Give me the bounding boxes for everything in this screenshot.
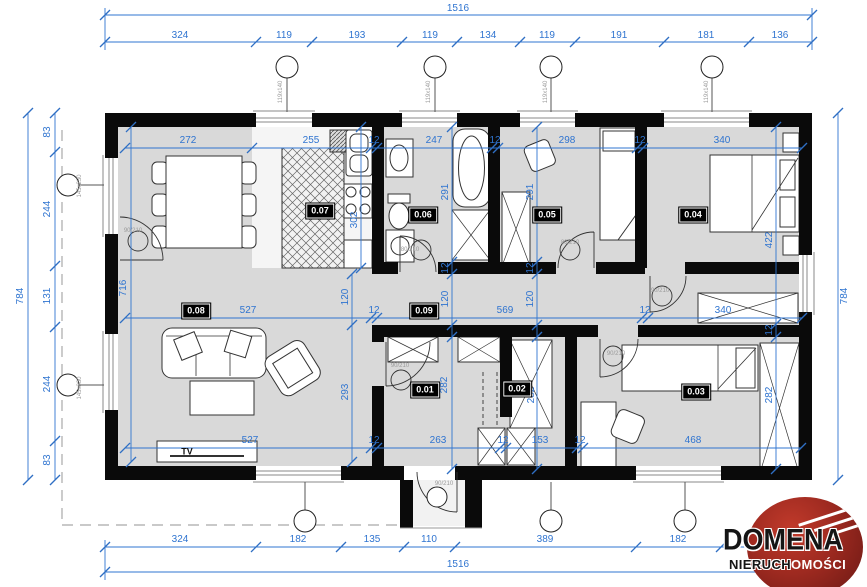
kitchen-island bbox=[282, 148, 344, 268]
coffee-table bbox=[190, 381, 254, 415]
dimension-label: 12 bbox=[489, 136, 500, 146]
toilet bbox=[389, 203, 409, 229]
size-annotation: 80/210 bbox=[561, 240, 579, 246]
closet-02-furniture bbox=[478, 340, 552, 465]
dimension-label: 12 bbox=[634, 136, 645, 146]
wardrobe bbox=[388, 337, 438, 362]
wardrobe bbox=[502, 192, 530, 266]
dimension-label: 181 bbox=[698, 31, 715, 41]
dimension-label: 119 bbox=[276, 31, 292, 41]
chair bbox=[152, 162, 168, 184]
property-boundary-dashed bbox=[62, 130, 400, 525]
nightstand bbox=[783, 133, 799, 152]
bedroom-05-furniture bbox=[502, 128, 638, 266]
interior-wall bbox=[372, 262, 398, 274]
size-annotation: 90/210 bbox=[435, 481, 453, 487]
bathtub bbox=[453, 129, 490, 207]
dimension-label: 120 bbox=[441, 291, 451, 308]
porch-wall bbox=[400, 480, 413, 528]
dimension-label: 282 bbox=[440, 377, 450, 394]
size-annotation: 119x140 bbox=[543, 81, 549, 104]
size-annotation: 145x230 bbox=[77, 376, 83, 399]
marker-circle bbox=[540, 56, 562, 112]
dimension-label: 182 bbox=[670, 535, 687, 545]
dimension-label: 263 bbox=[430, 436, 447, 446]
washbasin bbox=[386, 139, 413, 177]
logo-subtitle: NIERUCHOMOŚCI bbox=[729, 557, 846, 572]
marker-circle bbox=[57, 374, 104, 396]
size-annotation: 119x140 bbox=[704, 81, 710, 104]
size-annotation: 90/210 bbox=[124, 228, 142, 234]
floor-plan-canvas: 145x230145x230119x140119x140119x140119x1… bbox=[0, 0, 867, 587]
dimension-label: 527 bbox=[240, 306, 257, 316]
sofa-pillow bbox=[224, 330, 251, 357]
dimension-label: 12 bbox=[497, 436, 508, 446]
dimension-label: 119 bbox=[539, 31, 555, 41]
desk bbox=[581, 402, 616, 468]
dimension-label: 182 bbox=[290, 535, 307, 545]
dimension-label: 1516 bbox=[447, 560, 469, 570]
interior-wall bbox=[635, 127, 647, 268]
dining-table bbox=[166, 156, 242, 248]
dimension-label: 468 bbox=[685, 436, 702, 446]
wardrobe bbox=[698, 293, 798, 323]
interior-wall bbox=[500, 337, 512, 417]
single-bed bbox=[622, 345, 758, 391]
exterior-wall-left bbox=[105, 113, 118, 480]
interior-wall bbox=[685, 262, 812, 274]
armchair bbox=[262, 337, 324, 399]
exterior-wall-right bbox=[799, 113, 812, 480]
marker-circle bbox=[674, 482, 696, 532]
marker-circle bbox=[294, 482, 316, 532]
single-bed bbox=[600, 128, 638, 240]
dimension-label: 12 bbox=[441, 262, 451, 273]
wardrobe bbox=[760, 343, 799, 473]
window bbox=[633, 466, 724, 482]
dimension-lines bbox=[28, 8, 838, 580]
shower bbox=[452, 210, 490, 260]
size-annotation: 119x140 bbox=[426, 81, 432, 104]
size-annotation: 90/210 bbox=[607, 351, 625, 357]
dimension-label: 135 bbox=[364, 535, 381, 545]
marker-circle bbox=[540, 482, 562, 532]
windows bbox=[103, 111, 814, 482]
size-annotation: 90/210 bbox=[391, 363, 409, 369]
porch-floor bbox=[413, 480, 465, 526]
dimension-label: 282 bbox=[765, 387, 775, 404]
interior-wall bbox=[438, 262, 556, 274]
window bbox=[253, 466, 344, 482]
dimension-label: 244 bbox=[43, 201, 53, 218]
floors bbox=[118, 127, 799, 526]
door-swing bbox=[558, 232, 594, 268]
sofa bbox=[162, 328, 266, 378]
dimension-label: 12 bbox=[639, 306, 650, 316]
sliding-opening bbox=[483, 372, 497, 428]
room-number: 0.06 bbox=[409, 208, 437, 223]
dimension-label: 302 bbox=[350, 212, 360, 229]
size-annotation: 145x230 bbox=[77, 174, 83, 197]
size-annotation: 119x140 bbox=[278, 81, 284, 104]
marker-circle bbox=[424, 56, 446, 112]
kitchen-floor bbox=[252, 127, 372, 268]
room-number: 0.02 bbox=[503, 382, 531, 397]
window bbox=[399, 111, 460, 127]
wardrobe bbox=[507, 428, 535, 465]
marker-circle bbox=[701, 56, 723, 112]
chair bbox=[240, 194, 256, 216]
interior-wall bbox=[638, 325, 812, 337]
toilet-tank bbox=[388, 194, 410, 203]
sofa-pillow bbox=[174, 332, 203, 361]
fridge bbox=[344, 240, 372, 268]
chair bbox=[240, 162, 256, 184]
room-number: 0.01 bbox=[411, 383, 439, 398]
dimension-label: 298 bbox=[559, 136, 576, 146]
pillow bbox=[780, 197, 795, 227]
window bbox=[253, 111, 315, 127]
dimension-label: 131 bbox=[43, 288, 53, 305]
bathroom-fixtures bbox=[386, 129, 490, 262]
marker-circle bbox=[276, 56, 298, 112]
dimension-label: 291 bbox=[441, 184, 451, 201]
interior-wall bbox=[372, 127, 384, 268]
armchair-cushion bbox=[273, 348, 313, 388]
door-swing bbox=[417, 472, 457, 512]
dimension-ticks bbox=[23, 10, 843, 577]
corridor-wardrobes bbox=[388, 293, 798, 362]
porch-wall bbox=[465, 480, 482, 528]
dimension-label: 527 bbox=[242, 436, 259, 446]
dimension-label: 193 bbox=[349, 31, 366, 41]
room-number: 0.05 bbox=[533, 208, 561, 223]
interior-wall bbox=[565, 337, 577, 480]
dimension-label: 12 bbox=[368, 306, 379, 316]
room-number: 0.03 bbox=[682, 385, 710, 400]
floor-gray bbox=[118, 127, 799, 466]
wardrobe bbox=[458, 337, 500, 362]
dining-table-set bbox=[152, 156, 256, 248]
dimension-label: 119 bbox=[422, 31, 438, 41]
dimension-label: 324 bbox=[172, 535, 189, 545]
door-swing bbox=[400, 236, 436, 272]
dimension-label: 716 bbox=[119, 280, 129, 297]
entry-door-opening bbox=[404, 466, 455, 480]
window bbox=[103, 155, 118, 237]
interior-wall bbox=[372, 325, 598, 337]
door-swing bbox=[600, 339, 638, 377]
bedroom-04-furniture bbox=[710, 133, 799, 255]
dimension-label: 134 bbox=[480, 31, 497, 41]
dimension-label: 293 bbox=[341, 384, 351, 401]
dimension-label: 136 bbox=[772, 31, 789, 41]
interior-wall bbox=[488, 127, 500, 268]
room-number: 0.04 bbox=[679, 208, 707, 223]
logo-domena: DOMENA NIERUCHOMOŚCI bbox=[723, 493, 867, 587]
logo-title: DOMENA bbox=[723, 524, 867, 557]
chair bbox=[240, 226, 256, 248]
kitchen-fixtures bbox=[282, 130, 372, 268]
dimension-label: 12 bbox=[368, 436, 379, 446]
wardrobe bbox=[510, 340, 552, 428]
dimension-label: 422 bbox=[765, 232, 775, 249]
interior-wall bbox=[372, 386, 384, 480]
window bbox=[517, 111, 578, 127]
dimension-label: 291 bbox=[526, 184, 536, 201]
door-swing bbox=[386, 342, 430, 390]
dimension-label: 247 bbox=[426, 136, 443, 146]
window bbox=[661, 111, 752, 127]
window bbox=[799, 252, 814, 315]
dimension-label: 282 bbox=[527, 387, 537, 404]
dimension-label: 340 bbox=[714, 136, 731, 146]
doors bbox=[120, 217, 686, 528]
walls bbox=[105, 113, 812, 528]
pillow bbox=[780, 160, 795, 190]
kitchen-sink bbox=[346, 130, 372, 176]
dimension-label: 784 bbox=[840, 288, 850, 305]
door-swing bbox=[120, 217, 163, 260]
double-bed bbox=[710, 155, 799, 232]
dimension-label: 153 bbox=[532, 436, 549, 446]
dimension-label: 12 bbox=[765, 324, 775, 335]
chair bbox=[152, 226, 168, 248]
bedroom-03-furniture bbox=[581, 343, 799, 473]
logo-subtitle-white: OMOŚCI bbox=[791, 557, 846, 572]
dimension-label: 784 bbox=[16, 288, 26, 305]
dimension-label: 110 bbox=[421, 535, 437, 545]
tv-cabinet bbox=[157, 441, 257, 462]
dimension-label: 244 bbox=[43, 376, 53, 393]
logo-subtitle-black: NIERUCH bbox=[729, 557, 791, 572]
room-number: 0.09 bbox=[410, 304, 438, 319]
window bbox=[103, 331, 118, 413]
dimension-label: 12 bbox=[574, 436, 585, 446]
pillow bbox=[736, 348, 755, 388]
furniture-label: TV bbox=[181, 448, 193, 457]
nightstand bbox=[783, 236, 799, 255]
dimension-label: 12 bbox=[526, 262, 536, 273]
dimension-label: 12 bbox=[368, 136, 379, 146]
wardrobe bbox=[478, 428, 505, 465]
stove bbox=[344, 184, 372, 218]
living-room-furniture bbox=[157, 328, 324, 462]
washing-machine bbox=[386, 230, 414, 262]
dimension-label: 324 bbox=[172, 31, 189, 41]
pillow bbox=[603, 131, 635, 151]
size-annotation: 90/210 bbox=[651, 288, 669, 294]
dimension-label: 569 bbox=[497, 306, 514, 316]
interior-wall bbox=[372, 337, 384, 342]
dimension-label: 83 bbox=[43, 454, 53, 465]
dimension-label: 120 bbox=[526, 291, 536, 308]
interior-wall bbox=[596, 262, 645, 274]
dimension-label: 255 bbox=[303, 136, 320, 146]
chair bbox=[152, 194, 168, 216]
exterior-wall-bottom bbox=[105, 466, 812, 480]
door-swing bbox=[650, 276, 686, 312]
size-annotation: 80/210 bbox=[401, 247, 419, 253]
room-number: 0.08 bbox=[182, 304, 210, 319]
exterior-wall-top bbox=[105, 113, 812, 127]
dimension-label: 120 bbox=[341, 289, 351, 306]
room-number: 0.07 bbox=[306, 204, 334, 219]
counter-corner bbox=[330, 130, 350, 152]
dimension-label: 83 bbox=[43, 126, 53, 137]
dimension-label: 191 bbox=[611, 31, 628, 41]
dimension-label: 389 bbox=[537, 535, 554, 545]
markers bbox=[57, 56, 723, 532]
furniture bbox=[152, 128, 799, 473]
dimension-label: 340 bbox=[715, 306, 732, 316]
chair bbox=[523, 138, 557, 173]
dimension-label: 1516 bbox=[447, 4, 469, 14]
dimension-label: 272 bbox=[180, 136, 197, 146]
marker-circle bbox=[427, 487, 447, 507]
marker-circle bbox=[57, 174, 104, 196]
desk-chair bbox=[609, 408, 646, 445]
